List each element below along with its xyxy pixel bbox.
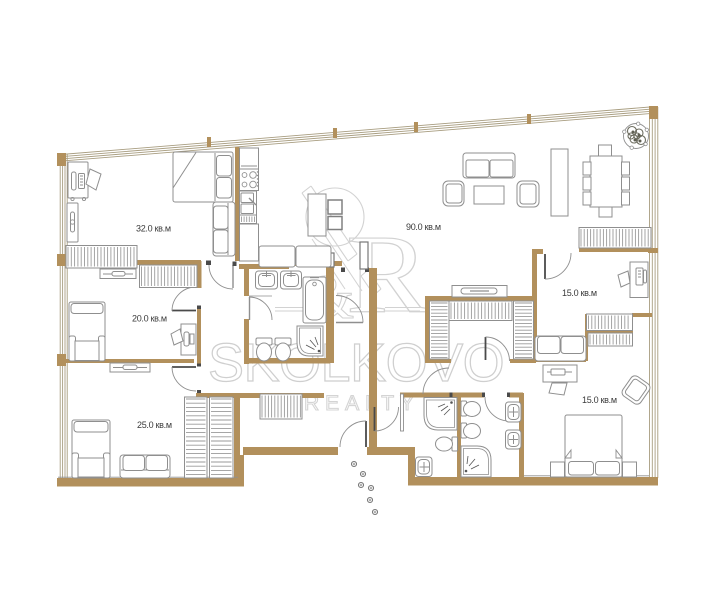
svg-text:90.0 кв.м: 90.0 кв.м bbox=[406, 222, 441, 232]
svg-text:15.0 кв.м: 15.0 кв.м bbox=[562, 288, 597, 298]
svg-text:25.0 кв.м: 25.0 кв.м bbox=[137, 420, 172, 430]
svg-text:32.0 кв.м: 32.0 кв.м bbox=[136, 224, 171, 234]
svg-text:15.0 кв.м: 15.0 кв.м bbox=[582, 395, 617, 405]
svg-text:20.0 кв.м: 20.0 кв.м bbox=[132, 314, 167, 324]
